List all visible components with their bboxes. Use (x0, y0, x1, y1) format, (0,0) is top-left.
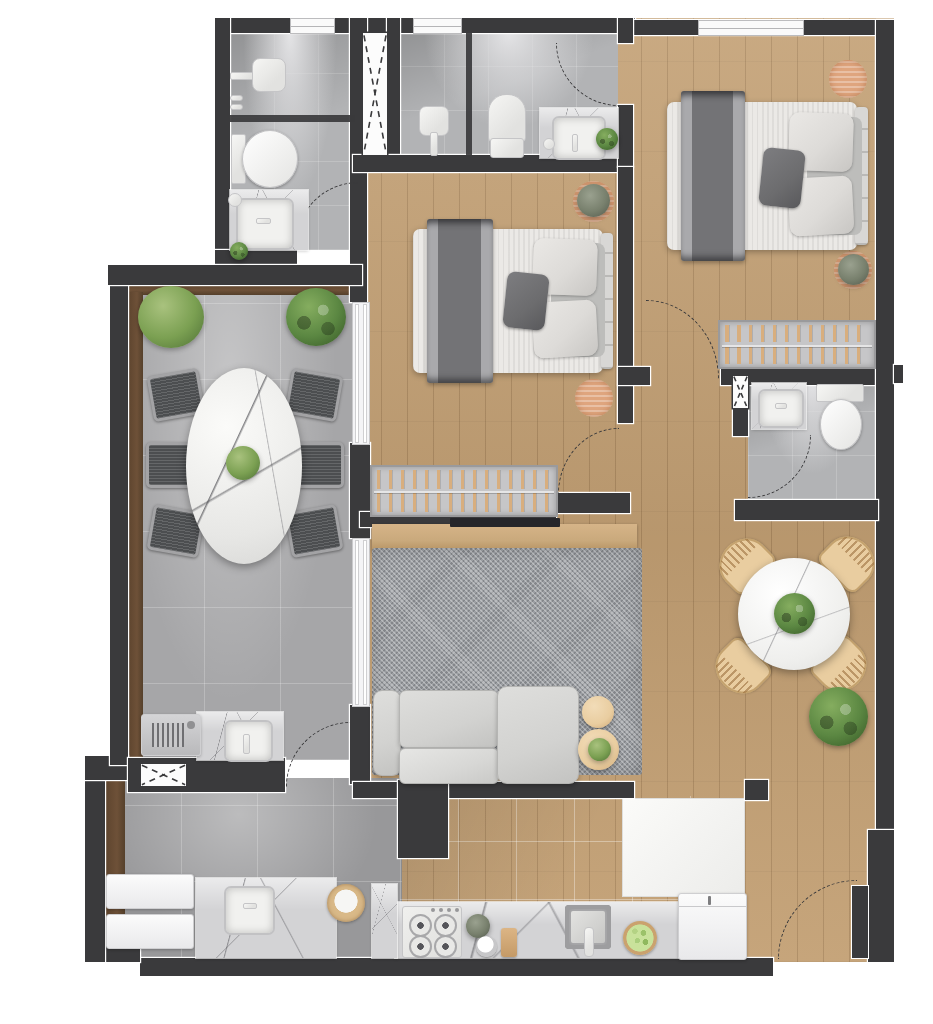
wall-glass-block-low (350, 705, 370, 784)
grill-knob (187, 721, 195, 729)
wall-kitchen-leg (398, 780, 448, 858)
living-side-table-small (582, 696, 614, 728)
dining-floor-plant (809, 687, 868, 746)
bathroom2-shower-divider (466, 33, 472, 155)
sliding-glass-door-lower (352, 538, 370, 707)
stove-knob-2 (439, 908, 443, 912)
vent-shaft-window (363, 33, 387, 155)
service-sink (224, 886, 275, 935)
kitchen-flowers (466, 914, 490, 938)
refrigerator-door-line (679, 906, 746, 907)
terrace-left-wood-trim (128, 292, 143, 760)
bathroom2-faucet (572, 134, 578, 152)
wall-right-bottom (868, 830, 894, 962)
bathroom1-shower-divider (230, 115, 355, 122)
wall-terrace-left (110, 265, 128, 765)
bathroom1-faucet (256, 218, 271, 224)
bathroom1-plant (230, 242, 248, 260)
wall-shaft-right (387, 18, 400, 155)
tv (450, 518, 560, 527)
wall-right-stub (894, 365, 903, 383)
wall-bathroom3-bottom (735, 500, 878, 520)
cutting-board (501, 928, 517, 957)
refrigerator-handle (708, 896, 711, 905)
wall-bathroom3-left (733, 406, 748, 436)
grill-vents (152, 723, 184, 747)
wall-bottom-main (140, 958, 773, 976)
sofa-seat-cushion (399, 748, 499, 784)
sliding-glass-door-upper (352, 302, 370, 445)
master-closet (718, 320, 876, 369)
master-closet-rail (722, 345, 872, 347)
terrace-plant-right (286, 288, 346, 346)
sofa-back-cushion (399, 690, 499, 748)
stove-knob-4 (455, 908, 459, 912)
master-bed-accent-pillow (758, 147, 806, 209)
bedroom2-closet-rail (374, 491, 554, 493)
kitchen-faucet (584, 927, 594, 957)
wall-bathroom1-bottom (215, 250, 297, 265)
terrace-plant-left (138, 286, 204, 348)
entry-door-leaf (852, 886, 868, 958)
bathroom2-plant (596, 128, 618, 150)
bathroom2-window (413, 18, 462, 34)
bathroom3-vent-window (733, 376, 748, 408)
wall-left-bathroom1 (215, 18, 230, 265)
master-bedroom-window (698, 20, 804, 36)
bedroom2-rug-bottom (575, 379, 613, 417)
wall-bathroom2-right-upper (618, 18, 633, 43)
bedroom2-closet-hangers-row1 (377, 470, 551, 488)
wall-terrace-top (108, 265, 362, 285)
master-rug-top (829, 60, 867, 98)
sofa-chaise (497, 686, 579, 784)
wall-bedroom2-bottom-seg (555, 493, 630, 513)
wall-right-main (876, 20, 894, 832)
wall-service-left (85, 756, 105, 962)
grill-sink-faucet (243, 734, 250, 754)
wall-living-bottom (353, 782, 634, 798)
bathroom1-window (290, 18, 335, 34)
fruit-bowl (623, 921, 657, 955)
kitchen-counter-left (372, 884, 397, 958)
bathroom1-sink-basin (236, 198, 294, 250)
bedroom2-bed-accent-pillow (502, 271, 550, 331)
wall-bathroom2-right-lower (618, 105, 633, 167)
bathroom2-toilet-back (488, 94, 526, 142)
bathroom1-shower-control2 (230, 104, 243, 110)
living-side-table-plant (588, 738, 611, 761)
bedroom2-bed-blanket (427, 219, 493, 383)
burner-3 (409, 935, 432, 958)
bedroom2-closet-hangers-row2 (377, 493, 551, 511)
bathroom1-shower-head (252, 58, 286, 92)
bathroom2-toilet-base (490, 138, 524, 158)
bathroom1-soap (228, 193, 242, 207)
grill-window (141, 764, 186, 786)
floor-plan (0, 0, 933, 1024)
master-plant (838, 254, 869, 285)
stove-knob-3 (447, 908, 451, 912)
kitchen-cabinet-zone (622, 798, 745, 897)
stove-knob-1 (431, 908, 435, 912)
bathroom3-toilet-bowl (820, 399, 862, 450)
stove (402, 906, 462, 958)
burner-2 (434, 914, 457, 937)
wall-kitchen-stub (745, 780, 768, 800)
burner-1 (409, 914, 432, 937)
burner-4 (434, 935, 457, 958)
bathroom1-shower-control (230, 95, 243, 101)
bread-basket (327, 884, 365, 922)
sofa-armrest (373, 690, 401, 776)
terrace-table-centerpiece (226, 446, 260, 480)
bathroom2-soap (543, 138, 555, 150)
master-bed-blanket (681, 91, 745, 261)
dining-table-centerpiece (774, 593, 815, 634)
bathroom2-shower-arm (430, 132, 438, 156)
bathroom1-toilet-bowl (242, 130, 298, 188)
master-closet-hangers-row2 (725, 347, 869, 364)
master-closet-hangers-row1 (725, 325, 869, 342)
bathroom3-faucet (775, 403, 787, 409)
dryer (106, 914, 194, 949)
kitchen-bowl (476, 936, 497, 957)
bedroom2-closet (370, 465, 558, 517)
washer (106, 874, 194, 909)
service-sink-faucet (243, 903, 257, 909)
grill-appliance (141, 714, 201, 756)
bedroom2-plant (577, 184, 610, 217)
refrigerator (678, 893, 747, 960)
